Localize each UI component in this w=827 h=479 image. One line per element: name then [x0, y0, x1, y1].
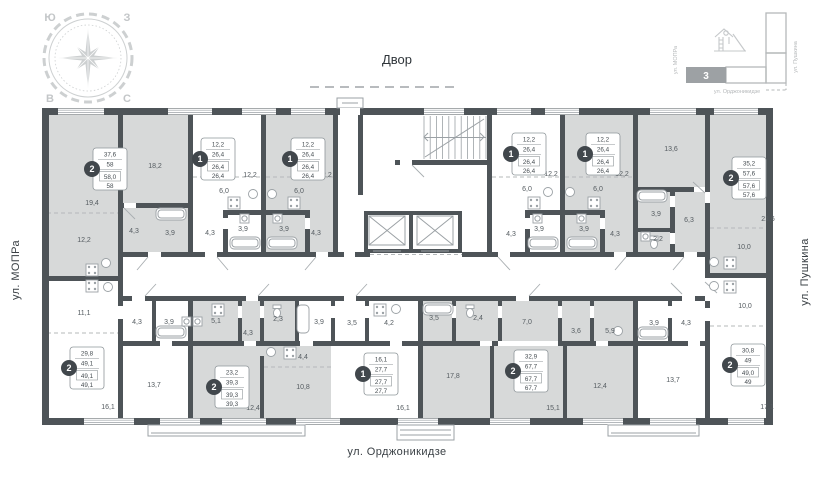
- room-area-label: 18,2: [148, 163, 162, 170]
- room-area-label: 3,9: [579, 226, 589, 233]
- apartment-area-value: 12,2: [302, 142, 315, 149]
- room-area-label: 7,0: [522, 319, 532, 326]
- courtyard-label: Двор: [382, 52, 412, 67]
- apartment-area-value: 39,3: [226, 401, 239, 408]
- room-area-label: 12,2: [77, 237, 91, 244]
- room-area-label: 4,3: [681, 320, 691, 327]
- apartment-area-value: 26,4: [302, 152, 315, 159]
- apartment-area-value: 35,2: [743, 161, 756, 168]
- apartment-area-value: 26,4: [523, 147, 536, 154]
- apartment-area-value: 26,4: [523, 159, 536, 166]
- apartment-rooms-number: 2: [89, 164, 94, 174]
- apartment-area-value: 39,3: [226, 380, 239, 387]
- room-area-label: 13,7: [147, 382, 161, 389]
- apartment-area-value: 27,7: [375, 388, 388, 395]
- apartment-card[interactable]: 12,226,426,426,41: [192, 138, 235, 180]
- room-area-label: 3,9: [279, 226, 289, 233]
- room-area-label: 17,1: [760, 404, 774, 411]
- apartment-area-value: 26,4: [212, 173, 225, 180]
- apartment-area-value: 37,6: [104, 152, 117, 159]
- apartment-area-value: 49: [744, 379, 752, 386]
- room-area-label: 3,5: [347, 320, 357, 327]
- apartment-area-value: 49,0: [742, 370, 755, 377]
- room-area-label: 12,2: [243, 172, 257, 179]
- apartment-area-value: 67,7: [525, 385, 538, 392]
- compass-letter-ne: З: [124, 12, 131, 24]
- apartment-area-value: 26,4: [597, 159, 610, 166]
- room-area-label: 3,9: [165, 230, 175, 237]
- room-area-label: 4,2: [384, 320, 394, 327]
- room-area-label: 3,9: [314, 319, 324, 326]
- apartment-area-value: 16,1: [375, 357, 388, 364]
- room-area-label: 3,9: [164, 319, 174, 326]
- room-area-label: 5,9: [605, 328, 615, 335]
- apartment-area-value: 23,2: [226, 370, 239, 377]
- room-area-label: 4,3: [311, 230, 321, 237]
- site-map-street-right: ул. Пушкина: [793, 40, 799, 73]
- apartment-area-value: 58: [106, 162, 114, 169]
- room-area-label: 12,4: [593, 383, 607, 390]
- apartment-area-value: 49,1: [81, 373, 94, 380]
- site-map-section-number: 3: [703, 71, 709, 82]
- room-area-label: 21,6: [761, 216, 775, 223]
- apartment-area-value: 26,4: [597, 168, 610, 175]
- apartment-area-value: 26,4: [597, 147, 610, 154]
- apartment-rooms-number: 1: [508, 149, 513, 159]
- apartment-area-value: 26,4: [302, 173, 315, 180]
- compass-letter-nw: Ю: [44, 12, 55, 24]
- apartment-rooms-number: 1: [360, 369, 365, 379]
- apartment-area-value: 12,2: [597, 137, 610, 144]
- floor-plan-svg: Ю З В С Двор ул. МОПРа ул. Пушкина ул. О…: [0, 0, 827, 479]
- apartment-area-value: 30,8: [742, 348, 755, 355]
- street-label-left: ул. МОПРа: [10, 239, 22, 300]
- apartment-card[interactable]: 12,226,426,426,41: [503, 133, 546, 175]
- compass-letter-sw: В: [46, 93, 54, 105]
- apartment-area-value: 29,8: [81, 351, 94, 358]
- room-area-label: 3,6: [571, 328, 581, 335]
- site-map-street-left: ул. МОПРа: [673, 45, 679, 74]
- apartment-card[interactable]: 30,84949,0492: [722, 344, 765, 386]
- playground-icon: [714, 29, 746, 51]
- compass-letter-se: С: [123, 93, 131, 105]
- street-label-bottom: ул. Орджоникидзе: [347, 446, 446, 458]
- apartment-area-value: 26,4: [523, 168, 536, 175]
- room-area-label: 4,3: [205, 230, 215, 237]
- room-area-label: 11,1: [77, 310, 90, 317]
- apartment-rooms-number: 2: [727, 360, 732, 370]
- apartment-area-value: 12,2: [523, 137, 536, 144]
- room-area-label: 6,0: [593, 186, 603, 193]
- apartment-rooms-number: 2: [510, 366, 515, 376]
- room-area-label: 4,3: [506, 231, 516, 238]
- room-area-label: 10,8: [296, 384, 310, 391]
- room-area-label: 4,3: [129, 228, 139, 235]
- apartment-area-value: 49: [744, 358, 752, 365]
- apartment-area-value: 57,6: [743, 183, 756, 190]
- room-area-label: 2,3: [273, 316, 283, 323]
- apartment-area-value: 49,1: [81, 382, 94, 389]
- room-area-label: 10,0: [738, 303, 752, 310]
- apartment-rooms-number: 2: [728, 173, 733, 183]
- apartment-rooms-number: 2: [211, 382, 216, 392]
- building-plan: 19,412,218,24,33,912,26,04,33,912,26,03,…: [42, 98, 775, 440]
- apartment-area-value: 26,4: [212, 152, 225, 159]
- apartment-rooms-number: 1: [287, 154, 292, 164]
- apartment-rooms-number: 2: [66, 363, 71, 373]
- room-area-label: 19,4: [85, 200, 99, 207]
- room-area-label: 3,9: [651, 211, 661, 218]
- apartment-area-value: 58,0: [104, 174, 117, 181]
- floor-plan-page: Ю З В С Двор ул. МОПРа ул. Пушкина ул. О…: [0, 0, 827, 479]
- apartment-card[interactable]: 29,849,149,149,12: [61, 347, 104, 389]
- apartment-area-value: 57,6: [743, 171, 756, 178]
- street-label-right: ул. Пушкина: [799, 238, 811, 306]
- room-area-label: 16,1: [396, 405, 410, 412]
- room-area-label: 13,7: [666, 377, 680, 384]
- compass-rose: Ю З В С: [44, 12, 132, 105]
- room-area-label: 16,1: [101, 404, 115, 411]
- room-area-label: 4,4: [298, 354, 308, 361]
- room-area-label: 17,8: [446, 373, 460, 380]
- room-area-label: 4,3: [243, 330, 253, 337]
- room-area-label: 3,5: [429, 315, 439, 322]
- apartment-area-value: 12,2: [212, 142, 225, 149]
- apartment-area-value: 27,7: [375, 367, 388, 374]
- room-area-label: 6,0: [522, 186, 532, 193]
- room-area-label: 15,1: [546, 405, 560, 412]
- apartment-area-value: 39,3: [226, 392, 239, 399]
- apartment-area-value: 57,6: [743, 192, 756, 199]
- room-area-label: 3,9: [649, 320, 659, 327]
- site-map-street-bottom: ул. Орджоникидзе: [714, 89, 760, 95]
- room-area-label: 6,3: [684, 217, 694, 224]
- apartment-area-value: 49,1: [81, 361, 94, 368]
- room-area-label: 3,9: [534, 226, 544, 233]
- apartment-card[interactable]: 16,127,727,727,71: [355, 353, 398, 395]
- apartment-area-value: 26,4: [212, 164, 225, 171]
- apartment-area-value: 58: [106, 183, 114, 190]
- room-area-label: 6,0: [294, 188, 304, 195]
- room-area-label: 10,0: [737, 244, 751, 251]
- room-area-label: 13,6: [664, 146, 678, 153]
- apartment-area-value: 67,7: [525, 376, 538, 383]
- room-area-label: 3,9: [238, 226, 248, 233]
- room-area-label: 5,1: [211, 318, 221, 325]
- apartment-rooms-number: 1: [582, 149, 587, 159]
- apartment-rooms-number: 1: [197, 154, 202, 164]
- room-area-label: 6,0: [219, 188, 229, 195]
- apartment-area-value: 27,7: [375, 379, 388, 386]
- room-area-label: 4,3: [132, 319, 142, 326]
- room-area-label: 4,3: [610, 231, 620, 238]
- apartment-area-value: 67,7: [525, 364, 538, 371]
- stairwell: [424, 116, 486, 159]
- room-area-label: 2,2: [653, 236, 663, 243]
- apartment-area-value: 26,4: [302, 164, 315, 171]
- room-area-label: 2,4: [473, 315, 483, 322]
- apartment-area-value: 32,9: [525, 354, 538, 361]
- site-map: 3 ул. МОПРа ул. Пушкина ул. Орджоникидзе: [673, 13, 799, 95]
